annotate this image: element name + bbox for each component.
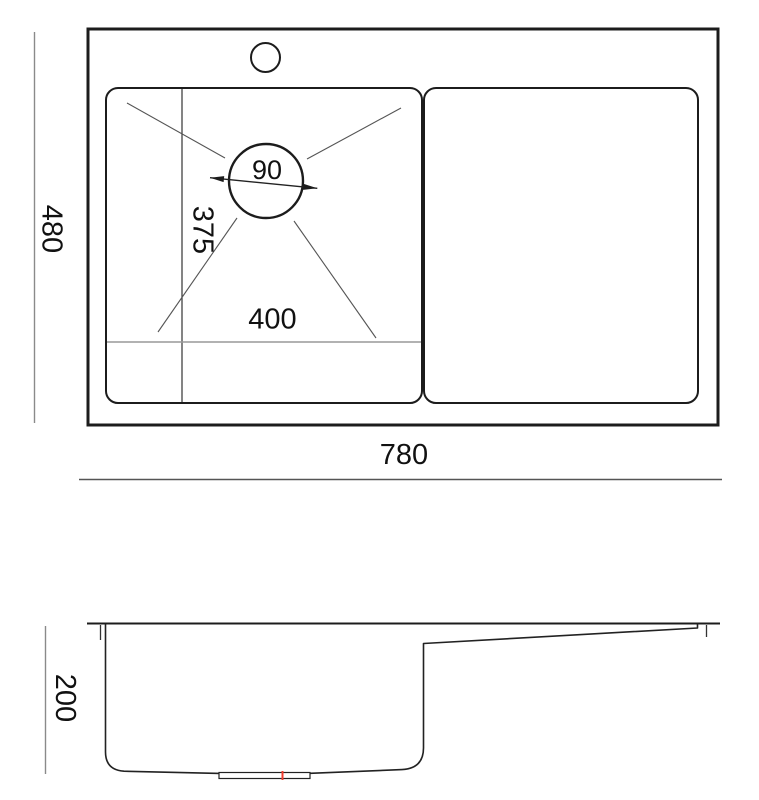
dim-label-drain-diameter: 90 xyxy=(252,155,282,185)
dim-label-bowl-height: 200 xyxy=(49,674,81,722)
dim-label-overall-width: 780 xyxy=(380,439,428,471)
bowl-outline xyxy=(106,88,422,403)
drain-flange xyxy=(219,773,310,779)
sink-technical-drawing: 480 780 400 375 90 200 xyxy=(0,0,759,800)
drawing-canvas: 480 780 400 375 90 200 xyxy=(0,0,759,800)
drain-diameter-arrow-left xyxy=(210,176,224,182)
dim-label-overall-depth: 480 xyxy=(36,205,68,253)
faucet-hole xyxy=(251,43,280,72)
drain-diameter-arrow-right xyxy=(303,184,317,190)
bowl-slope-line-top-right xyxy=(307,108,401,159)
top-view: 480 780 400 375 90 xyxy=(35,29,723,480)
side-view: 200 xyxy=(46,624,721,781)
bowl-slope-line-bottom-right xyxy=(294,221,376,338)
drainboard-outline xyxy=(424,88,698,403)
bowl-profile xyxy=(106,624,698,774)
bowl-slope-line-top-left xyxy=(127,103,225,158)
dim-label-bowl-width: 400 xyxy=(248,304,296,336)
dim-label-bowl-depth: 375 xyxy=(187,206,219,254)
